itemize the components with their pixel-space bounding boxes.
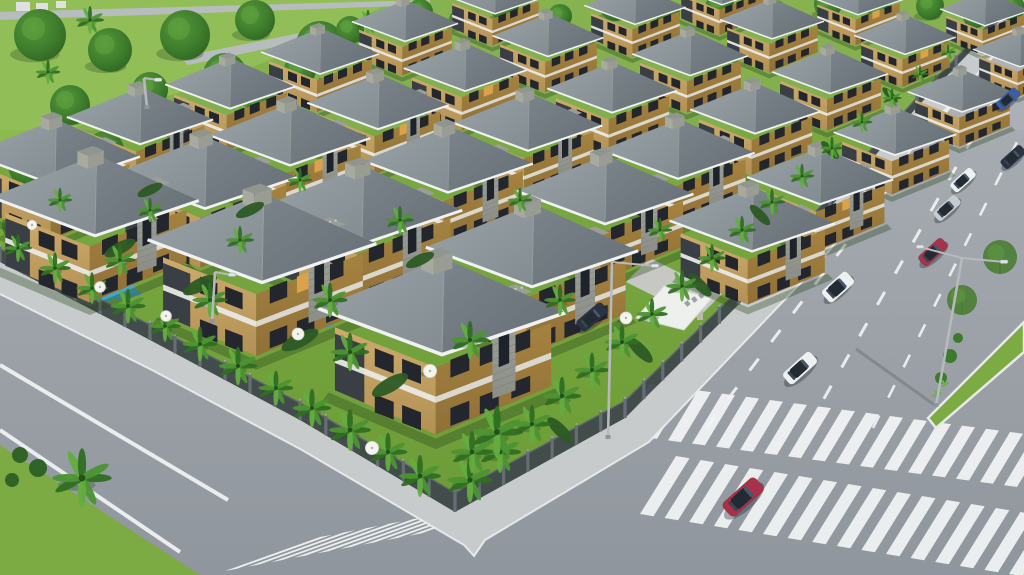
tree xyxy=(914,0,944,21)
bush xyxy=(12,447,28,463)
fence-pillar xyxy=(526,450,529,471)
umbrella-pole xyxy=(371,447,373,449)
palm-center xyxy=(59,199,62,202)
fence-pillar xyxy=(551,437,554,458)
fence-pillar-cap xyxy=(643,378,645,380)
fence-pillar-cap xyxy=(662,360,664,362)
fence-pillar-cap xyxy=(527,449,529,451)
palm-center xyxy=(590,368,594,372)
fence-pillar-cap xyxy=(551,436,553,438)
palm-center xyxy=(310,406,314,410)
umbrella-pole xyxy=(165,315,167,317)
palm-center xyxy=(919,73,921,75)
umbrella-pole xyxy=(625,317,627,319)
palm-center xyxy=(861,121,863,123)
palm-center xyxy=(299,179,302,182)
render-canvas xyxy=(0,0,1024,575)
tree-highlight xyxy=(95,35,115,55)
palm-center xyxy=(47,71,50,74)
palm-center xyxy=(560,394,564,398)
palm-center xyxy=(831,147,834,150)
bush xyxy=(29,459,47,477)
fence-pillar-cap xyxy=(402,459,404,461)
lamp-head xyxy=(651,264,659,268)
pole-base xyxy=(210,319,215,323)
fence-pillar xyxy=(324,415,327,435)
pole-base xyxy=(606,435,611,439)
fence-pillar-cap xyxy=(249,373,251,375)
fence-pillar xyxy=(718,306,721,324)
umbrella-pole xyxy=(31,224,33,226)
fence-pillar xyxy=(642,380,645,400)
lamp-head xyxy=(916,245,924,249)
palm-center xyxy=(236,364,240,368)
fence-pillar xyxy=(453,490,456,512)
median-tree-highlight xyxy=(988,245,1005,262)
palm-center xyxy=(163,324,167,328)
fence-pillar xyxy=(955,55,958,67)
palm-center xyxy=(620,340,624,344)
tree-highlight xyxy=(340,20,353,33)
palm-center xyxy=(126,304,130,308)
palm-center xyxy=(740,228,743,231)
palm-center xyxy=(238,238,241,241)
pole-base xyxy=(934,403,939,407)
palm-center xyxy=(558,298,562,302)
umbrella-pole xyxy=(429,370,431,372)
lamp-head xyxy=(1000,260,1008,264)
median-tree-highlight xyxy=(951,289,966,304)
palm-center xyxy=(348,350,352,354)
fence-pillar xyxy=(248,374,251,393)
palm-center xyxy=(274,386,278,390)
tree-highlight xyxy=(22,17,45,40)
umbrella-pole xyxy=(297,333,299,335)
fence-pillar-cap xyxy=(325,414,327,416)
fence-pillar-cap xyxy=(600,410,602,412)
palm-center xyxy=(710,256,713,259)
umbrella-pole xyxy=(99,286,101,288)
palm-center xyxy=(530,422,534,426)
aerial-villa-development-render xyxy=(0,0,1024,575)
palm-center xyxy=(680,284,684,288)
fence-pillar xyxy=(173,335,176,353)
palm-center xyxy=(659,229,662,232)
palm-center xyxy=(468,338,472,342)
lamp-head xyxy=(228,273,236,277)
tree-highlight xyxy=(241,6,259,24)
fence-pillar xyxy=(699,324,702,342)
fence-pillar xyxy=(623,398,626,418)
palm-center xyxy=(801,175,804,178)
palm-center xyxy=(328,298,332,302)
fence-pillar xyxy=(0,246,2,262)
palm-center xyxy=(470,450,475,455)
palm-center xyxy=(650,312,654,316)
palm-center xyxy=(53,266,57,270)
fence-pillar-cap xyxy=(149,321,151,323)
palm-center xyxy=(198,342,202,346)
fence-pillar xyxy=(661,361,664,380)
tree-highlight xyxy=(168,18,191,41)
fence-pillar-cap xyxy=(955,53,957,55)
palm-center xyxy=(16,246,19,249)
fence-pillar xyxy=(575,424,578,445)
palm-center xyxy=(208,298,212,302)
fence-pillar-cap xyxy=(299,399,301,401)
fence-pillar-cap xyxy=(699,323,701,325)
median-bush xyxy=(953,333,963,343)
fence-pillar-cap xyxy=(575,423,577,425)
fence-pillar-cap xyxy=(718,305,720,307)
fence-pillar-cap xyxy=(624,397,626,399)
palm-center xyxy=(418,474,423,479)
fence-pillar xyxy=(148,322,151,340)
pole-base xyxy=(145,105,150,109)
palm-center xyxy=(149,209,152,212)
pebble xyxy=(335,219,337,221)
palm-center xyxy=(494,429,500,435)
palm-center xyxy=(348,428,353,433)
pebble xyxy=(521,286,524,289)
palm-center xyxy=(771,201,774,204)
fence-pillar xyxy=(680,343,683,362)
bush xyxy=(5,473,19,487)
lamp-head xyxy=(154,78,162,82)
palm-center xyxy=(118,258,122,262)
palm-center xyxy=(79,475,86,482)
palm-center xyxy=(947,51,949,53)
palm-center xyxy=(88,18,91,21)
fence-pillar-cap xyxy=(224,360,226,362)
palm-center xyxy=(519,199,522,202)
palm-center xyxy=(398,218,401,221)
tree-highlight xyxy=(56,91,74,109)
palm-center xyxy=(467,477,472,482)
palm-center xyxy=(891,97,893,99)
fence-pillar-cap xyxy=(680,341,682,343)
fence-pillar xyxy=(599,411,602,431)
palm-center xyxy=(386,450,390,454)
